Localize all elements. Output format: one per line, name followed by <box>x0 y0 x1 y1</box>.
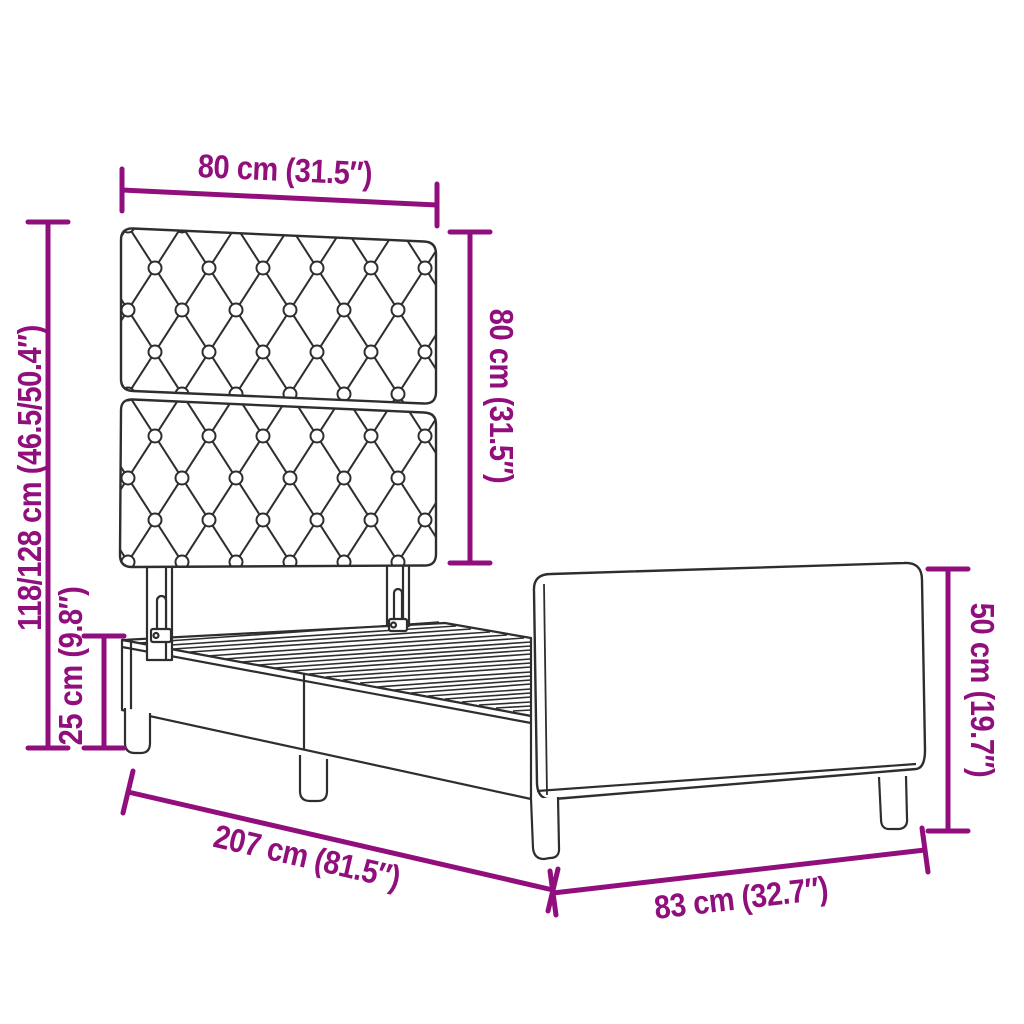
dim-frame-length <box>123 771 558 911</box>
footboard-panel <box>534 563 925 799</box>
dimension-label-total-height: 118/128 cm (46.5/50.4″) <box>11 325 49 631</box>
bed-frame-illustration <box>0 0 1024 1024</box>
footboard-leg-rear <box>879 776 907 829</box>
dim-frame-height <box>84 636 124 748</box>
frame-leg-front-middle <box>300 755 327 801</box>
dimension-label-frame-height: 25 cm (9.8″) <box>52 587 90 746</box>
frame-leg-front-left <box>125 708 150 753</box>
dim-footboard-height <box>928 569 968 831</box>
headboard-lower-panel <box>120 399 436 567</box>
footboard-leg-front <box>531 797 559 859</box>
dimension-label-headboard-height: 80 cm (31.5″) <box>482 309 520 483</box>
headboard-upper-panel <box>121 228 436 403</box>
dimension-label-footboard-height: 50 cm (19.7″) <box>963 603 1001 777</box>
dimension-diagram: 80 cm (31.5″) 80 cm (31.5″) 118/128 cm (… <box>0 0 1024 1024</box>
dimension-label-headboard-width: 80 cm (31.5″) <box>197 147 373 193</box>
